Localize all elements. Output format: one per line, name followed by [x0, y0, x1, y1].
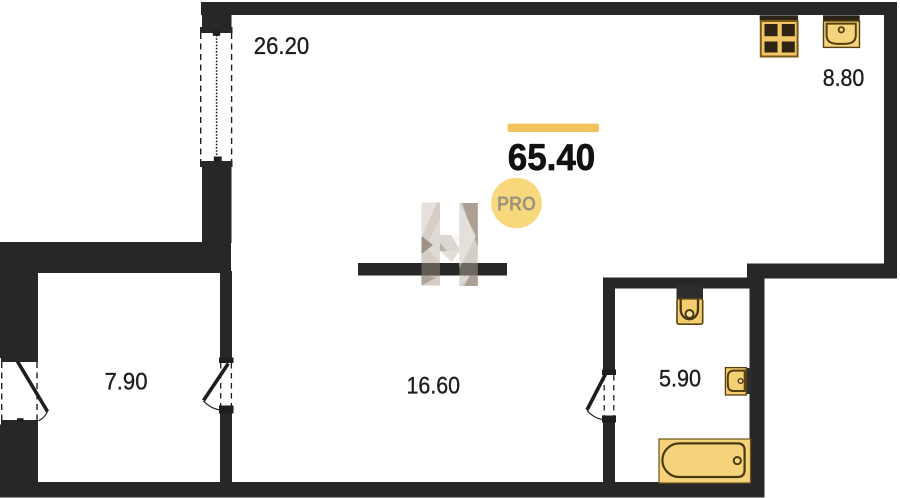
svg-text:16.60: 16.60 — [407, 373, 461, 400]
svg-text:PRO: PRO — [497, 194, 536, 216]
svg-text:5.90: 5.90 — [659, 366, 701, 393]
svg-text:8.80: 8.80 — [823, 65, 865, 92]
svg-text:26.20: 26.20 — [254, 33, 310, 60]
svg-text:65.40: 65.40 — [508, 137, 596, 178]
svg-text:7.90: 7.90 — [105, 369, 148, 396]
